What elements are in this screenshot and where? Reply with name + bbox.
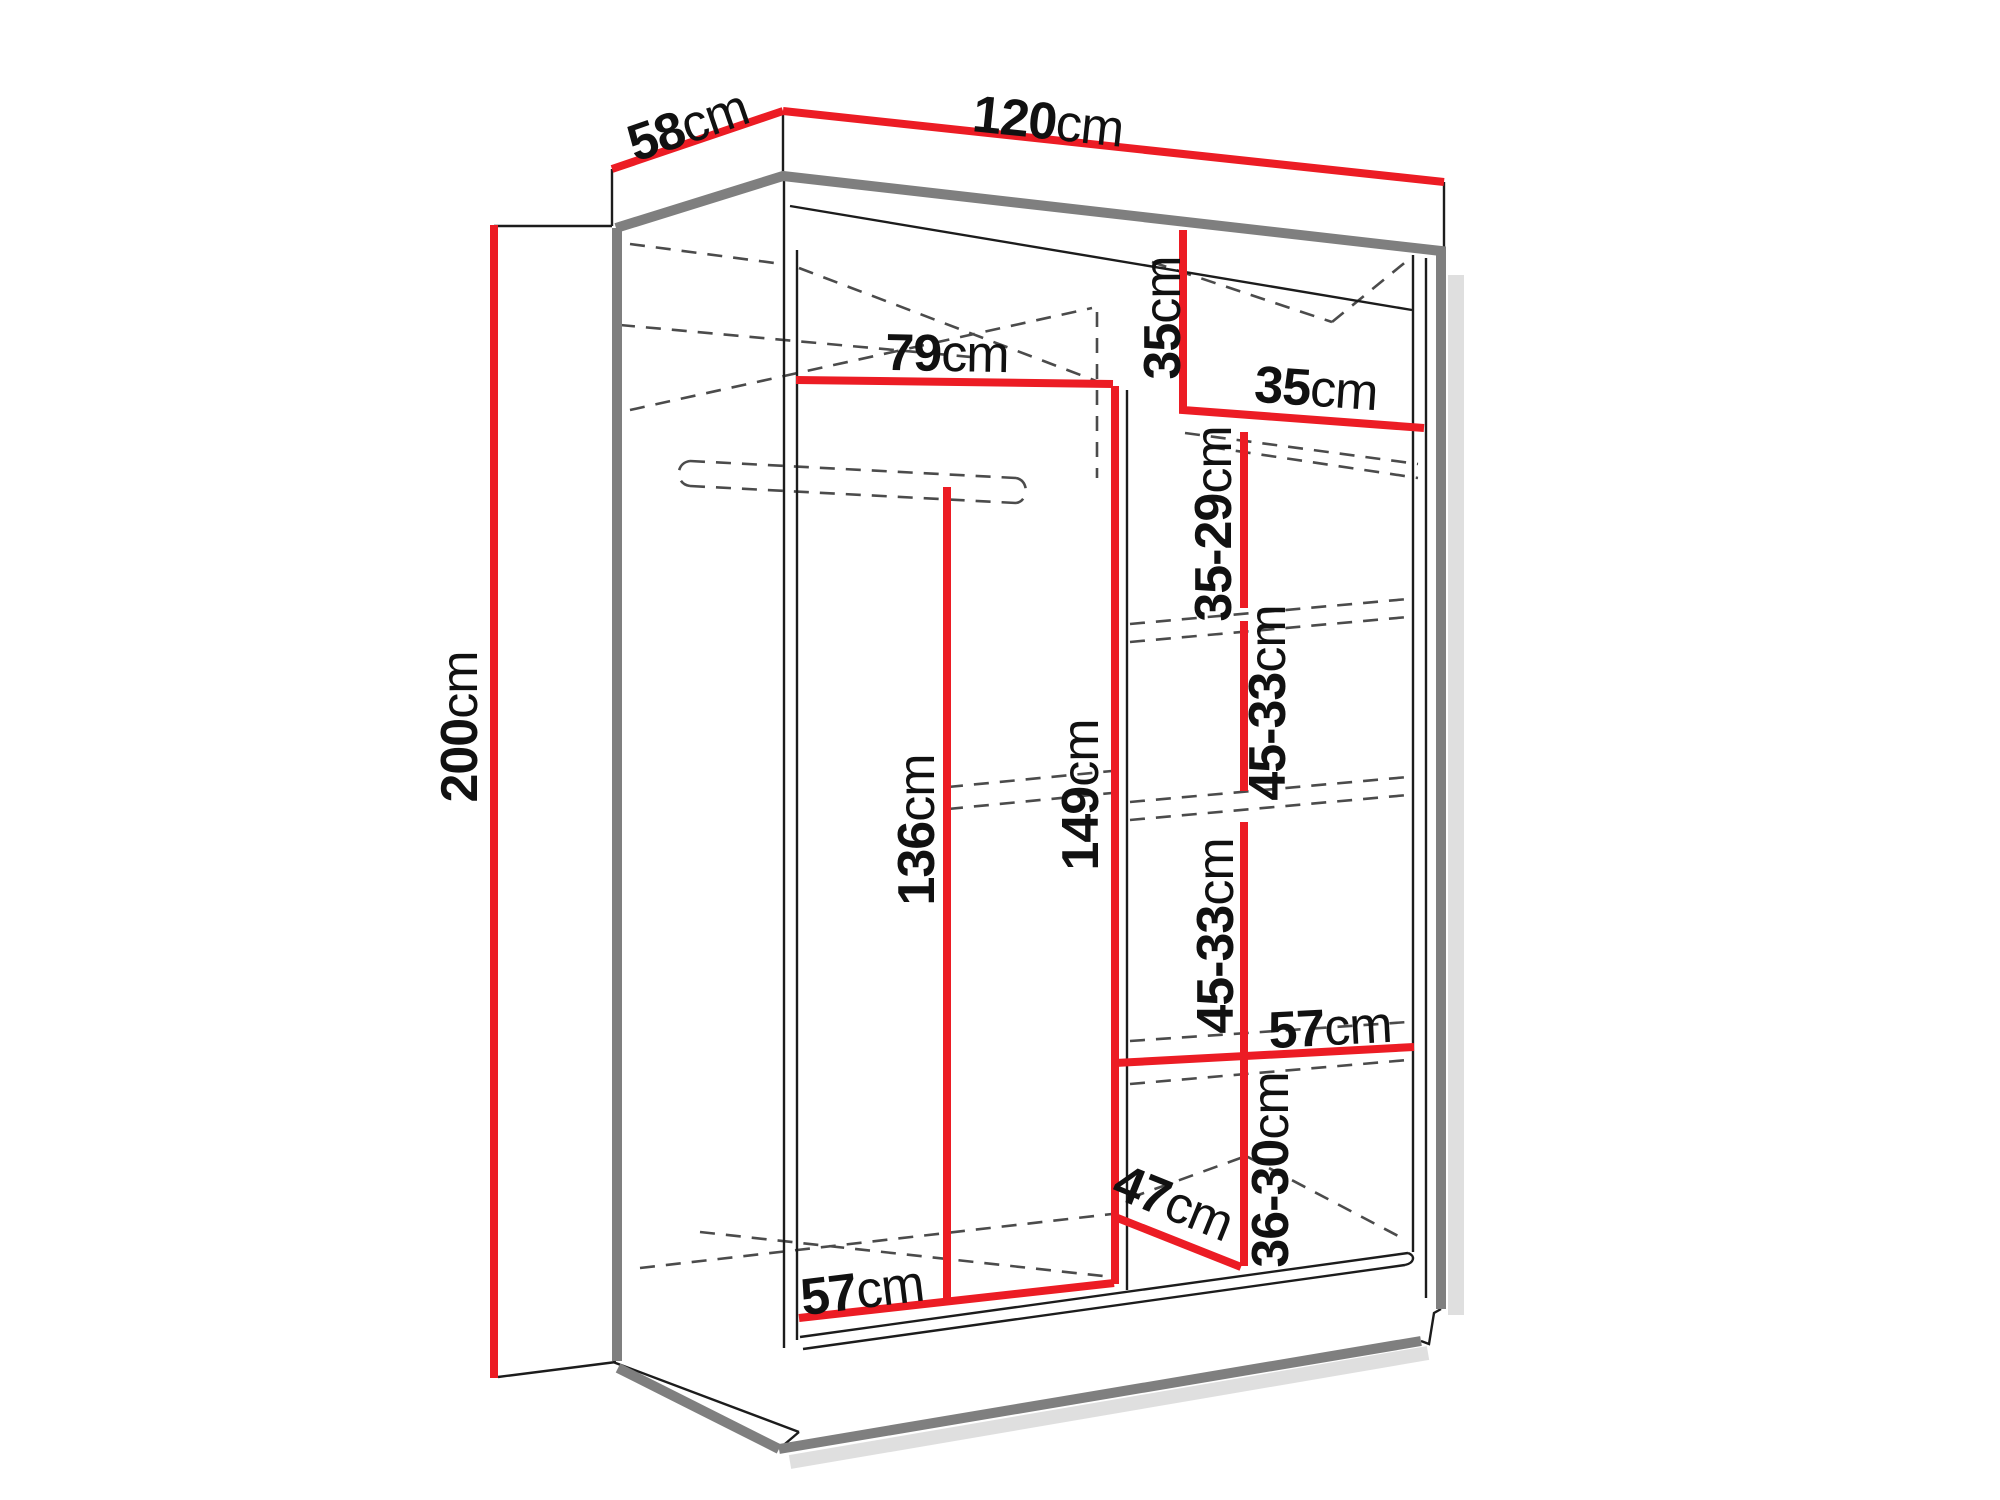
dimension-label-top-right-compartment-height: 35cm xyxy=(1134,256,1192,379)
dimension-lines xyxy=(494,111,1444,1378)
dimension-label-left-section-width: 79cm xyxy=(885,324,1009,384)
bottom-board-cap xyxy=(1405,1253,1413,1265)
front-left-foot xyxy=(613,1356,800,1449)
dimension-label-right-shelf-gap-1: 35-29cm xyxy=(1185,426,1243,621)
dimension-label-height-left: 200cm xyxy=(431,651,489,802)
clothes-rail xyxy=(679,461,1026,503)
plinth-bottom-edge xyxy=(779,1341,1421,1449)
dimension-label-right-lower-shelf-width: 57cm xyxy=(1267,996,1393,1060)
foot-shadow-edge xyxy=(618,1368,779,1449)
dimension-label-bottom-left-width: 57cm xyxy=(797,1255,926,1328)
dimension-label-hanging-space-height: 136cm xyxy=(888,754,946,905)
diagram-canvas: 58cm120cm200cm79cm35cm35cm35-29cm45-33cm… xyxy=(0,0,2000,1500)
front-top-right-edge xyxy=(616,176,1441,1309)
left-side-panel xyxy=(494,226,616,1377)
dimension-label-right-section-width: 35cm xyxy=(1253,356,1380,422)
foot-top-edge xyxy=(613,1362,799,1432)
dimension-label-right-shelf-gap-4: 36-30cm xyxy=(1242,1072,1300,1267)
wardrobe-dimension-diagram: 58cm120cm200cm79cm35cm35cm35-29cm45-33cm… xyxy=(0,0,2000,1500)
dimension-label-center-section-height: 149cm xyxy=(1052,719,1110,870)
dimension-label-right-shelf-gap-2: 45-33cm xyxy=(1239,605,1297,800)
right-foot-step xyxy=(1421,1309,1441,1344)
dimension-label-right-shelf-gap-3: 45-33cm xyxy=(1187,838,1245,1033)
